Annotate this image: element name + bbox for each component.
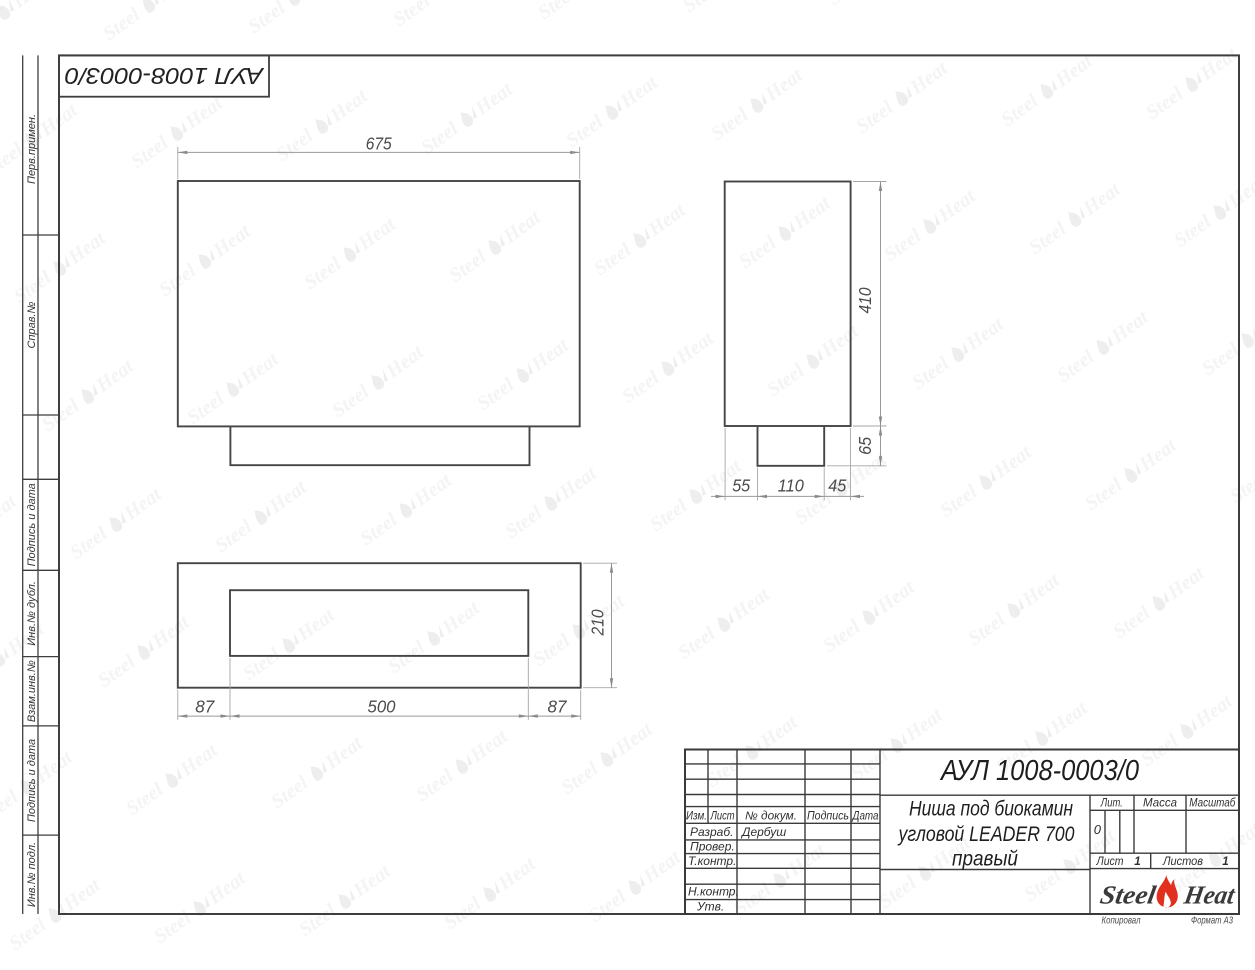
svg-text:45: 45: [828, 476, 846, 496]
svg-text:Лист: Лист: [1096, 856, 1124, 868]
svg-text:Масса: Масса: [1143, 798, 1177, 810]
svg-text:Справ.№: Справ.№: [26, 301, 38, 348]
svg-text:Подпись: Подпись: [807, 811, 849, 823]
svg-text:Подпись и дата: Подпись и дата: [26, 739, 38, 822]
svg-text:Утв.: Утв.: [696, 900, 724, 914]
svg-text:Инв.№ дубл.: Инв.№ дубл.: [26, 581, 38, 646]
svg-text:500: 500: [368, 697, 396, 717]
svg-text:Подпись и дата: Подпись и дата: [26, 483, 38, 566]
svg-text:Инв.№ подл.: Инв.№ подл.: [26, 842, 38, 907]
svg-text:Взам.инв.№: Взам.инв.№: [26, 660, 38, 722]
svg-text:Провер.: Провер.: [690, 840, 735, 854]
svg-text:правый: правый: [952, 848, 1018, 871]
svg-text:0: 0: [1094, 822, 1102, 837]
svg-text:Т.контр.: Т.контр.: [688, 854, 736, 868]
svg-text:Разраб.: Разраб.: [690, 825, 733, 839]
svg-text:675: 675: [366, 133, 392, 153]
svg-text:Листов: Листов: [1162, 856, 1203, 868]
svg-text:1: 1: [1222, 856, 1228, 868]
svg-text:Изм.: Изм.: [686, 811, 707, 823]
svg-text:Дербуш: Дербуш: [740, 825, 786, 839]
svg-text:410: 410: [855, 287, 875, 313]
svg-text:210: 210: [588, 609, 608, 636]
svg-text:Формат А3: Формат А3: [1191, 915, 1233, 927]
svg-text:АУЛ 1008-0003/0: АУЛ 1008-0003/0: [65, 63, 265, 89]
svg-text:110: 110: [778, 476, 804, 496]
svg-text:№ докум.: № докум.: [745, 811, 797, 823]
svg-text:Перв.примен.: Перв.примен.: [26, 114, 38, 184]
svg-text:Масштаб: Масштаб: [1189, 798, 1235, 810]
svg-text:Ниша под биокамин: Ниша под биокамин: [909, 798, 1073, 821]
svg-text:Лит.: Лит.: [1100, 798, 1123, 810]
svg-text:Н.контр.: Н.контр.: [688, 885, 739, 899]
svg-text:АУЛ 1008-0003/0: АУЛ 1008-0003/0: [939, 755, 1139, 787]
svg-text:Лист: Лист: [710, 811, 735, 823]
svg-text:87: 87: [195, 697, 215, 717]
svg-text:55: 55: [732, 476, 750, 496]
svg-text:Steel: Steel: [1098, 881, 1159, 910]
svg-text:Дата: Дата: [851, 811, 879, 823]
svg-text:65: 65: [855, 437, 875, 455]
svg-text:Heat: Heat: [1181, 881, 1238, 910]
svg-text:1: 1: [1134, 856, 1140, 868]
svg-text:87: 87: [548, 697, 568, 717]
svg-text:угловой LEADER 700: угловой LEADER 700: [897, 823, 1075, 846]
svg-text:Копировал: Копировал: [1102, 915, 1141, 927]
